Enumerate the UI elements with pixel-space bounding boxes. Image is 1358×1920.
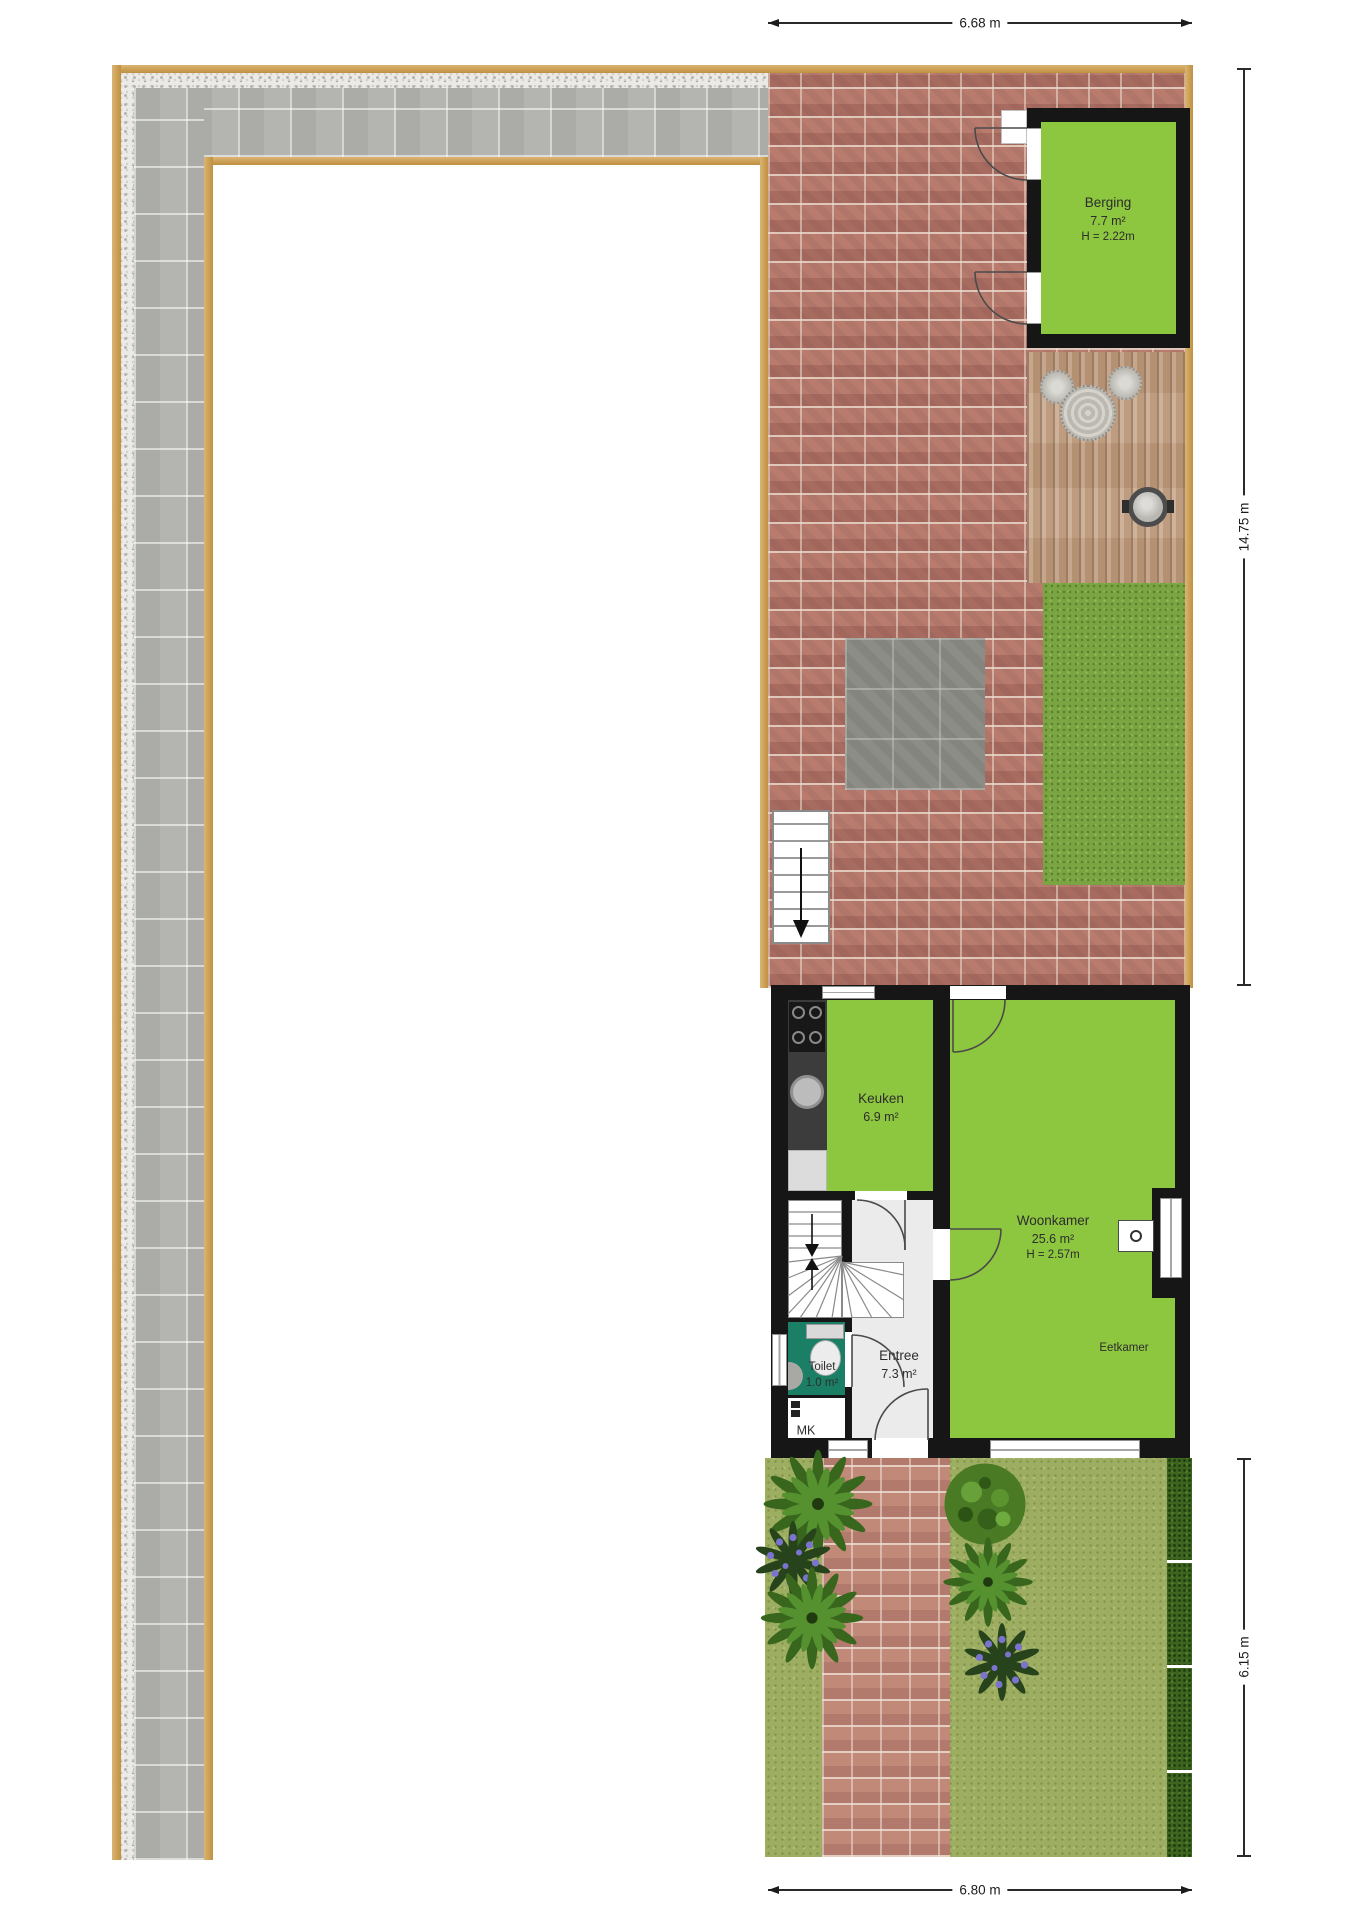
toilet-door-opening — [845, 1332, 852, 1387]
slate-tile-square — [845, 638, 985, 790]
meter-box — [791, 1410, 800, 1417]
deck-table — [1060, 385, 1116, 441]
dimension-tick — [1237, 1458, 1251, 1460]
hedge — [1167, 1458, 1192, 1857]
dimension-top-label: 6.68 m — [952, 16, 1007, 31]
mk-label: MK — [797, 1422, 816, 1439]
eetkamer-name: Eetkamer — [1099, 1341, 1148, 1357]
toilet-cistern — [806, 1324, 844, 1339]
timber-edge-left-outer — [112, 65, 121, 1860]
woonkamer-name: Woonkamer — [1017, 1212, 1090, 1231]
woonkamer-door-opening — [933, 1229, 950, 1280]
berging-door-opening — [1027, 272, 1041, 324]
front-door-opening — [872, 1438, 928, 1460]
toilet-area: 1.0 m² — [806, 1376, 839, 1392]
timber-edge-patio-left — [760, 157, 768, 988]
toilet-window — [772, 1334, 787, 1386]
mk-name: MK — [797, 1422, 816, 1439]
entree-window — [828, 1440, 868, 1460]
interior-stairs-landing — [842, 1262, 904, 1318]
timber-edge-band-bottom — [204, 157, 768, 165]
woonkamer-height: H = 2.57m — [1017, 1248, 1090, 1264]
stove-burner — [792, 1006, 805, 1019]
entree-label: Entree 7.3 m² — [879, 1347, 919, 1383]
entree-room — [852, 1200, 933, 1438]
front-garden-path — [822, 1458, 950, 1857]
fence-gate — [1001, 110, 1027, 144]
garden-door-opening — [950, 986, 1006, 999]
entree-area: 7.3 m² — [879, 1366, 919, 1383]
timber-edge-left-inner — [204, 157, 213, 1860]
keuken-area: 6.9 m² — [858, 1109, 904, 1126]
site-floor-plan: Berging 7.7 m² H = 2.22m Keuken 6.9 m² W… — [0, 0, 1358, 1920]
bay-window — [1160, 1198, 1182, 1278]
arrow-right-icon — [1181, 19, 1192, 27]
meter-box — [791, 1401, 800, 1408]
kitchen-cabinet — [788, 1150, 827, 1191]
stove-burner — [809, 1031, 822, 1044]
arrow-right-icon — [1181, 1886, 1192, 1894]
arrow-left-icon — [768, 19, 779, 27]
berging-label: Berging 7.7 m² H = 2.22m — [1081, 194, 1134, 246]
berging-door-opening — [1027, 128, 1041, 180]
toilet-label: Toilet 1.0 m² — [806, 1360, 839, 1392]
eetkamer-label: Eetkamer — [1099, 1341, 1148, 1357]
hedge-gap — [1167, 1665, 1192, 1668]
deck-chair — [1108, 366, 1142, 400]
paving-strip-left — [134, 88, 204, 1860]
paving-band-top — [134, 88, 768, 157]
woonkamer-area: 25.6 m² — [1017, 1231, 1090, 1248]
grill-handle — [1122, 500, 1129, 513]
interior-stairs-flight — [788, 1200, 842, 1318]
berging-height: H = 2.22m — [1081, 230, 1134, 246]
dimension-right-lower-label: 6.15 m — [1237, 1629, 1252, 1684]
stove-burner — [792, 1031, 805, 1044]
grill-handle — [1167, 500, 1174, 513]
keuken-label: Keuken 6.9 m² — [858, 1090, 904, 1126]
gravel-strip-top — [121, 73, 768, 88]
dimension-tick — [1237, 984, 1251, 986]
gravel-strip-left — [121, 73, 134, 1860]
toilet-name: Toilet — [806, 1360, 839, 1376]
dimension-tick — [1237, 1855, 1251, 1857]
kitchen-sink — [790, 1075, 824, 1109]
woonkamer-label: Woonkamer 25.6 m² H = 2.57m — [1017, 1212, 1090, 1264]
keuken-window — [822, 986, 875, 999]
entree-name: Entree — [879, 1347, 919, 1366]
fireplace-flue — [1130, 1230, 1142, 1242]
berging-area: 7.7 m² — [1081, 213, 1134, 230]
keuken-name: Keuken — [858, 1090, 904, 1109]
stove-burner — [809, 1006, 822, 1019]
dimension-bottom-label: 6.80 m — [952, 1883, 1007, 1898]
keuken-door-opening — [855, 1191, 907, 1200]
dimension-right-upper-label: 14.75 m — [1237, 496, 1252, 559]
berging-name: Berging — [1081, 194, 1134, 213]
arrow-left-icon — [768, 1886, 779, 1894]
grass-patch-upper — [1043, 583, 1185, 885]
timber-edge-top — [112, 65, 1193, 73]
garden-stairs — [772, 810, 830, 944]
bbq-grill — [1128, 487, 1168, 527]
living-room-window — [990, 1440, 1140, 1460]
dimension-tick — [1237, 68, 1251, 70]
hedge-gap — [1167, 1560, 1192, 1563]
hedge-gap — [1167, 1770, 1192, 1773]
